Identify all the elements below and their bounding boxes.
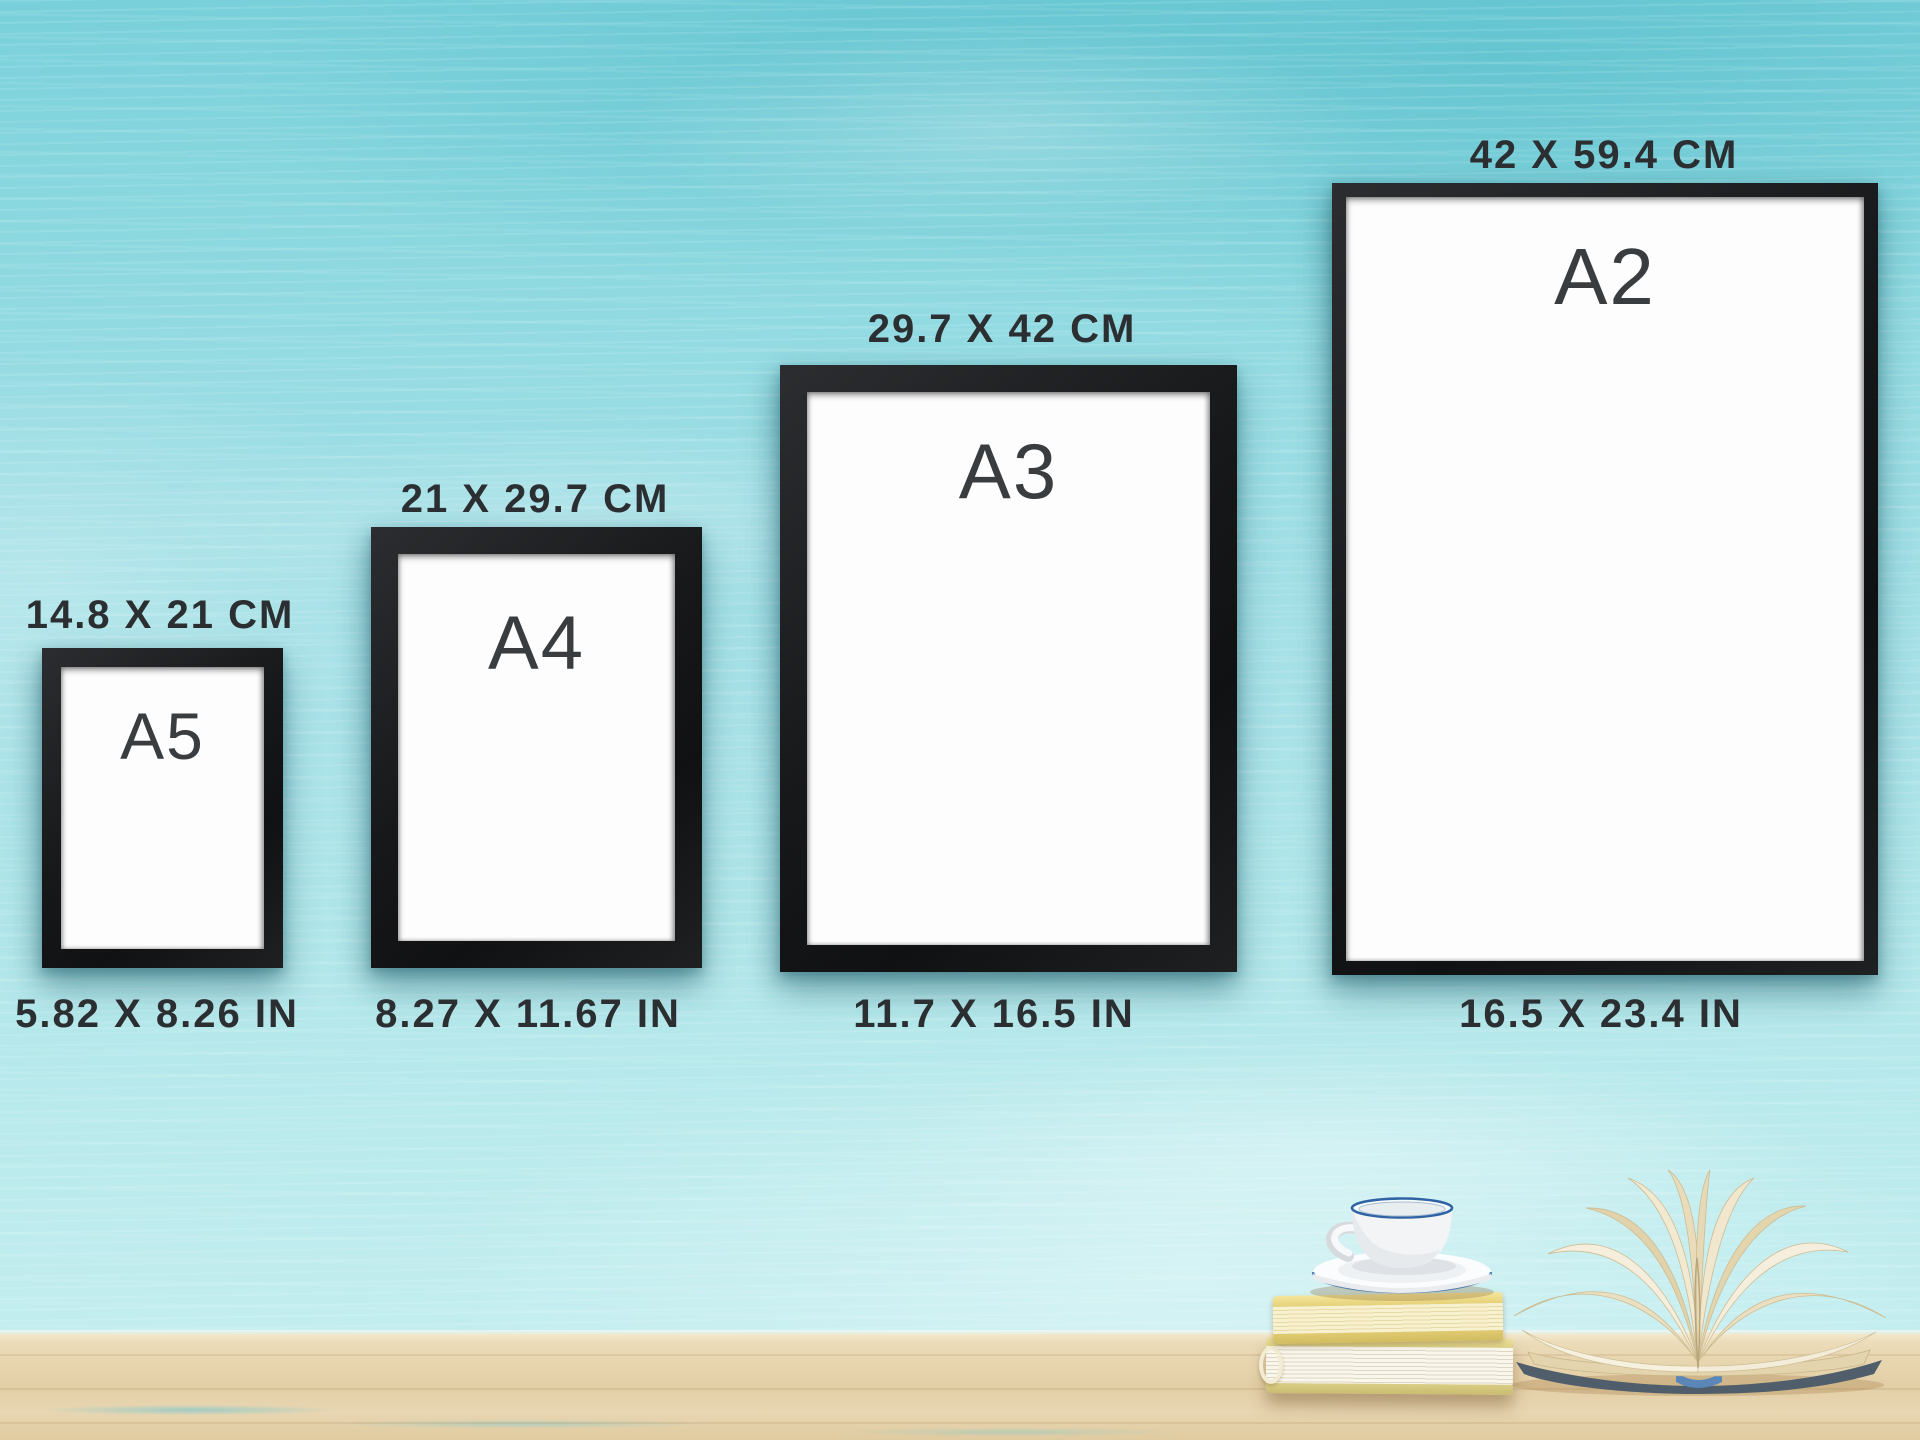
a2-cm-dimension-label: 42 X 59.4 CM bbox=[1364, 133, 1844, 177]
frame-a3: A3 bbox=[780, 365, 1237, 972]
book-elastic-loop bbox=[1259, 1346, 1283, 1384]
frame-a5: A5 bbox=[42, 648, 283, 968]
coffee-cup-on-saucer bbox=[1300, 1192, 1500, 1304]
frame-a2-paper: A2 bbox=[1346, 197, 1864, 961]
a2-inch-dimension-label: 16.5 X 23.4 IN bbox=[1361, 992, 1841, 1036]
a4-inch-dimension-label: 8.27 X 11.67 IN bbox=[288, 992, 768, 1036]
frame-a4: A4 bbox=[371, 527, 702, 968]
frame-a3-paper: A3 bbox=[807, 392, 1210, 945]
a2-size-name: A2 bbox=[1554, 237, 1656, 961]
frame-a4-paper: A4 bbox=[398, 554, 675, 941]
a3-inch-dimension-label: 11.7 X 16.5 IN bbox=[754, 992, 1234, 1036]
a3-size-name: A3 bbox=[959, 432, 1058, 945]
a5-cm-dimension-label: 14.8 X 21 CM bbox=[0, 593, 400, 637]
open-book bbox=[1498, 1166, 1898, 1398]
a4-size-name: A4 bbox=[488, 606, 585, 941]
a5-size-name: A5 bbox=[120, 703, 205, 949]
a4-cm-dimension-label: 21 X 29.7 CM bbox=[295, 477, 775, 521]
frame-a2: A2 bbox=[1332, 183, 1878, 975]
poster-size-comparison: 14.8 X 21 CM A5 5.82 X 8.26 IN 21 X 29.7… bbox=[0, 0, 1920, 1440]
frame-a5-paper: A5 bbox=[61, 667, 264, 949]
stacked-books-bottom-book bbox=[1266, 1337, 1513, 1395]
a3-cm-dimension-label: 29.7 X 42 CM bbox=[762, 307, 1242, 351]
